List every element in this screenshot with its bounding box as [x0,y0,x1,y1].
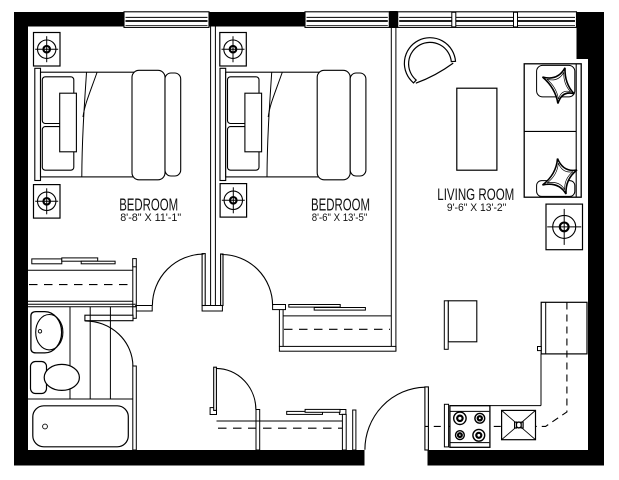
svg-text:8'-6" X 13'-5": 8'-6" X 13'-5" [312,212,368,224]
svg-text:8'-8" X 11'-1": 8'-8" X 11'-1" [120,212,181,224]
svg-text:9'-6" X 13'-2": 9'-6" X 13'-2" [447,202,507,214]
